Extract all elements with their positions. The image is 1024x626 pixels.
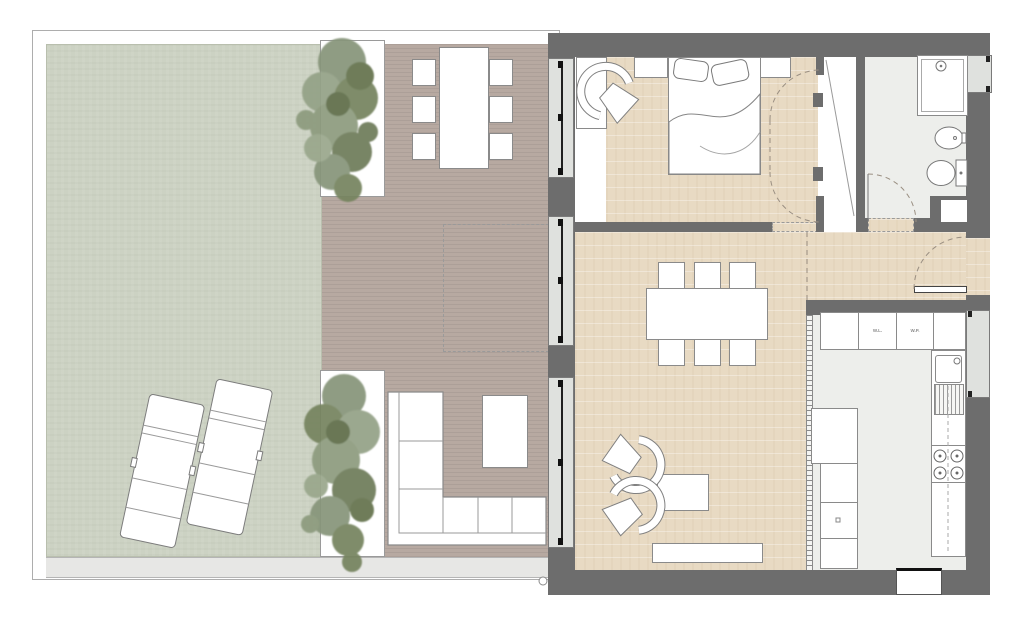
- window-frame: [968, 311, 972, 317]
- shower: [917, 55, 968, 116]
- glass-door: [548, 377, 574, 548]
- door-handle-icon: [558, 114, 563, 121]
- garden-lawn: [46, 44, 322, 557]
- window-frame: [986, 56, 990, 62]
- wall-top: [548, 33, 990, 57]
- kitchen-tall-unit: [820, 502, 858, 539]
- wall-closet-stub-top: [816, 35, 824, 75]
- dining-chair: [694, 262, 721, 290]
- door-handle-icon: [558, 336, 563, 343]
- terrace-chair: [412, 59, 436, 86]
- window-frame: [986, 86, 990, 92]
- wall-closet-stub-bottom: [816, 196, 824, 232]
- closet-floor: [824, 57, 856, 222]
- kitchen-window: [966, 310, 990, 398]
- door-handle-icon: [558, 219, 563, 226]
- glass-door: [548, 216, 574, 346]
- kitchen-wall-cabinet: [820, 312, 859, 350]
- cabinet-label: W.P.: [901, 329, 930, 334]
- wall-hinge-block: [813, 93, 823, 107]
- shower-tray: [921, 59, 964, 112]
- nightstand-right: [757, 57, 791, 78]
- pergola-outline: [443, 224, 549, 352]
- door-handle-icon: [558, 277, 563, 284]
- entry-threshold: [966, 238, 990, 295]
- kitchen-tall-unit: [820, 463, 858, 503]
- walkway: [46, 557, 548, 578]
- door-handle-icon: [558, 168, 563, 175]
- bedroom-passage: [772, 222, 818, 232]
- dining-chair: [729, 338, 756, 366]
- door-handle-icon: [558, 380, 563, 387]
- window-frame: [968, 391, 972, 397]
- kitchen-tall-unit: [811, 408, 858, 464]
- dining-chair: [694, 338, 721, 366]
- bath-niche: [941, 200, 967, 222]
- wall-hinge-block: [813, 167, 823, 181]
- bedroom-dresser: [576, 57, 607, 129]
- planter-bottom: [320, 370, 385, 557]
- wall-right: [966, 33, 990, 570]
- door-handle-icon: [558, 538, 563, 545]
- living-room-floor: [575, 232, 806, 570]
- dining-chair: [729, 262, 756, 290]
- kitchen-sink: [935, 355, 962, 383]
- terrace-dining-table: [439, 47, 489, 169]
- kitchen-wall-cabinet: [933, 312, 966, 350]
- terrace-side-table: [482, 395, 528, 468]
- terrace-chair: [489, 133, 513, 160]
- entry-door-leaf: [914, 286, 967, 293]
- kitchen-cooktop: [931, 445, 966, 483]
- nightstand-left: [634, 57, 668, 78]
- planter-top: [320, 40, 385, 197]
- dining-chair: [658, 338, 685, 366]
- bathroom-threshold: [868, 218, 914, 232]
- floor-plan: W.L. W.P.: [0, 0, 1024, 626]
- terrace-chair: [489, 59, 513, 86]
- door-handle-icon: [558, 61, 563, 68]
- terrace-chair: [489, 96, 513, 123]
- tv-sideboard: [652, 543, 763, 563]
- glass-door: [548, 58, 574, 178]
- kitchen-drainer: [934, 384, 964, 415]
- double-bed: [668, 57, 761, 175]
- wall-closet-bathroom: [856, 57, 865, 232]
- door-handle-icon: [558, 459, 563, 466]
- dining-table: [646, 288, 768, 340]
- kitchen-bottom-window: [896, 568, 942, 595]
- terrace-chair: [412, 96, 436, 123]
- cabinet-label: W.L.: [863, 329, 892, 334]
- bathroom-window: [964, 55, 992, 93]
- dining-chair: [658, 262, 685, 290]
- kitchen-tall-unit: [820, 538, 858, 569]
- wall-bedroom-living: [575, 222, 772, 232]
- coffee-table: [657, 474, 709, 511]
- terrace-chair: [412, 133, 436, 160]
